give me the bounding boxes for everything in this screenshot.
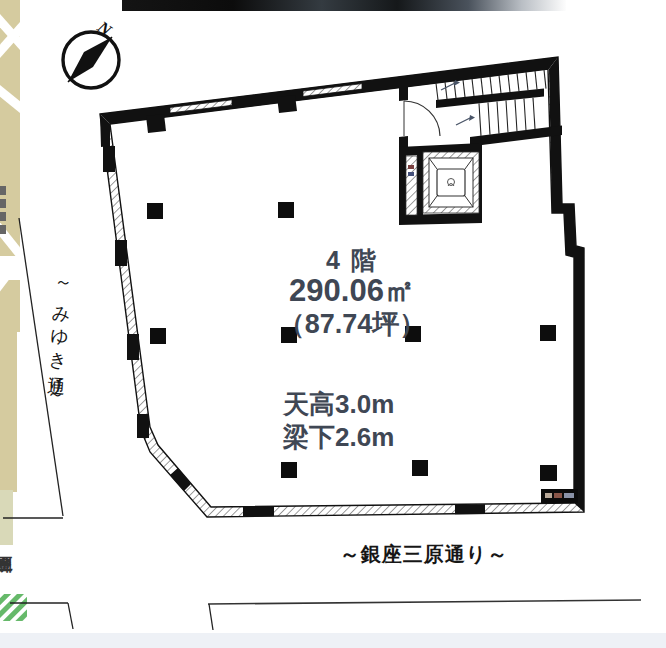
elevator-icon bbox=[399, 143, 482, 225]
street-label-ginza-mihara: ～銀座三原通り～ bbox=[326, 541, 522, 568]
stairs-icon bbox=[436, 70, 562, 147]
bottom-band bbox=[0, 633, 666, 648]
pipe-shaft bbox=[406, 156, 417, 215]
door-arc-icon bbox=[399, 78, 440, 150]
map-green-stripe-icon bbox=[0, 594, 27, 621]
map-strip bbox=[0, 0, 27, 621]
map-destination-label: 至豊洲 bbox=[0, 544, 14, 547]
floor-spec-block: 4 階 290.06㎡ （87.74坪） bbox=[228, 246, 476, 339]
area-square-meters: 290.06㎡ bbox=[228, 274, 476, 309]
area-tsubo: （87.74坪） bbox=[228, 309, 476, 339]
photo-strip bbox=[122, 0, 566, 11]
floor-label: 4 階 bbox=[228, 246, 476, 274]
under-beam-label: 梁下2.6m bbox=[283, 421, 394, 454]
floorplan-page: N 4 階 290.06㎡ （87.74坪） 天高3.0m 梁下2.6m ～みゆ… bbox=[0, 0, 666, 648]
right-wall bbox=[549, 57, 584, 512]
ceiling-height-label: 天高3.0m bbox=[283, 388, 394, 421]
label-stamp bbox=[541, 489, 578, 503]
compass-icon bbox=[37, 13, 152, 111]
height-spec-block: 天高3.0m 梁下2.6m bbox=[283, 388, 394, 454]
